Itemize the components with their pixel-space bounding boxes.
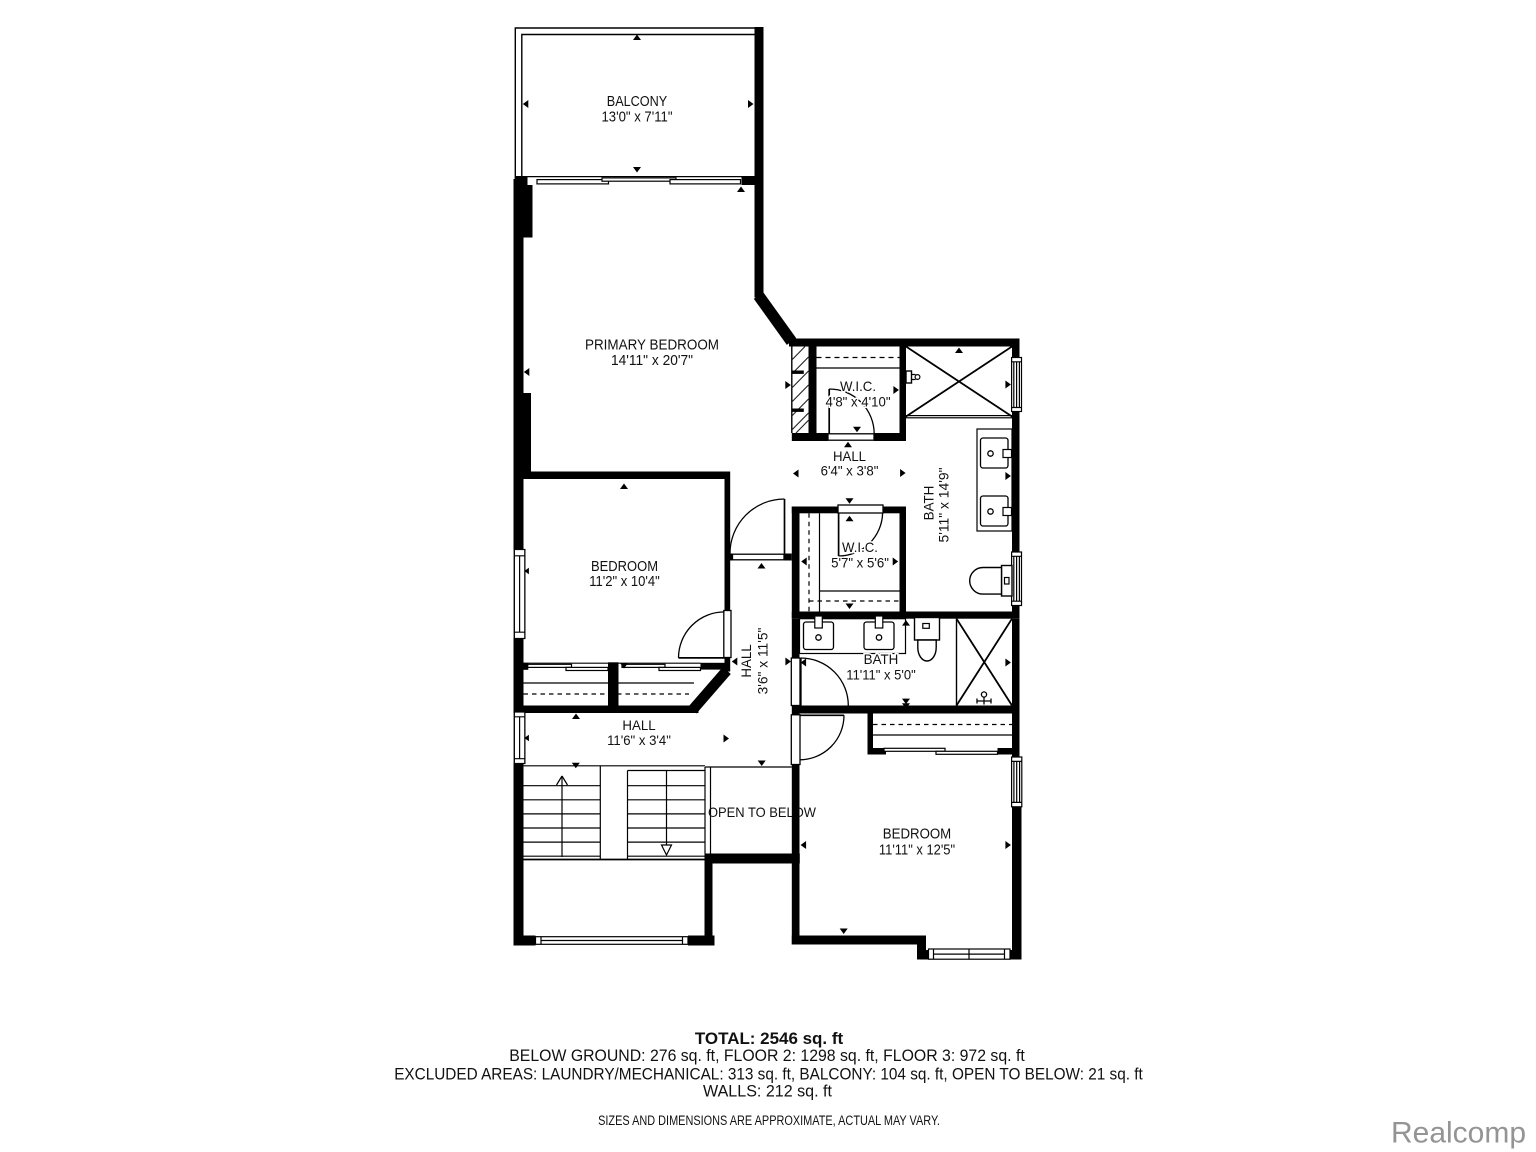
svg-text:OPEN TO BELOW: OPEN TO BELOW <box>708 804 817 820</box>
svg-text:Realcomp: Realcomp <box>1391 1116 1526 1149</box>
svg-text:13'0" x 7'11": 13'0" x 7'11" <box>602 109 673 126</box>
svg-text:PRIMARY BEDROOM: PRIMARY BEDROOM <box>585 337 719 354</box>
svg-text:HALL: HALL <box>738 644 754 677</box>
svg-text:HALL: HALL <box>622 717 655 733</box>
svg-text:6'4" x 3'8": 6'4" x 3'8" <box>821 463 879 479</box>
svg-text:BELOW GROUND: 276 sq. ft, FLOO: BELOW GROUND: 276 sq. ft, FLOOR 2: 1298 … <box>509 1047 1025 1065</box>
svg-text:14'11" x 20'7": 14'11" x 20'7" <box>611 352 693 369</box>
svg-text:5'11" x 14'9": 5'11" x 14'9" <box>936 467 952 542</box>
svg-text:3'6" x 11'5": 3'6" x 11'5" <box>755 628 771 695</box>
svg-text:11'11" x 12'5": 11'11" x 12'5" <box>879 842 955 859</box>
svg-text:BALCONY: BALCONY <box>607 93 668 110</box>
svg-text:EXCLUDED AREAS: LAUNDRY/MECHAN: EXCLUDED AREAS: LAUNDRY/MECHANICAL: 313 … <box>394 1066 1143 1084</box>
svg-text:WALLS: 212 sq. ft: WALLS: 212 sq. ft <box>703 1082 832 1100</box>
svg-text:BATH: BATH <box>921 486 937 521</box>
svg-text:5'7" x 5'6": 5'7" x 5'6" <box>831 555 889 571</box>
svg-text:BATH: BATH <box>864 651 899 667</box>
svg-text:TOTAL: 2546 sq. ft: TOTAL: 2546 sq. ft <box>695 1029 844 1048</box>
svg-text:SIZES AND DIMENSIONS ARE APPRO: SIZES AND DIMENSIONS ARE APPROXIMATE, AC… <box>598 1113 940 1128</box>
svg-text:HALL: HALL <box>833 448 866 464</box>
svg-text:11'2" x 10'4": 11'2" x 10'4" <box>589 573 660 590</box>
svg-text:W.I.C.: W.I.C. <box>842 539 878 555</box>
svg-text:BEDROOM: BEDROOM <box>883 826 951 843</box>
svg-text:4'8" x 4'10": 4'8" x 4'10" <box>826 394 891 410</box>
svg-text:11'11" x 5'0": 11'11" x 5'0" <box>846 667 915 683</box>
svg-text:11'6" x 3'4": 11'6" x 3'4" <box>607 732 671 748</box>
svg-text:W.I.C.: W.I.C. <box>840 378 876 394</box>
